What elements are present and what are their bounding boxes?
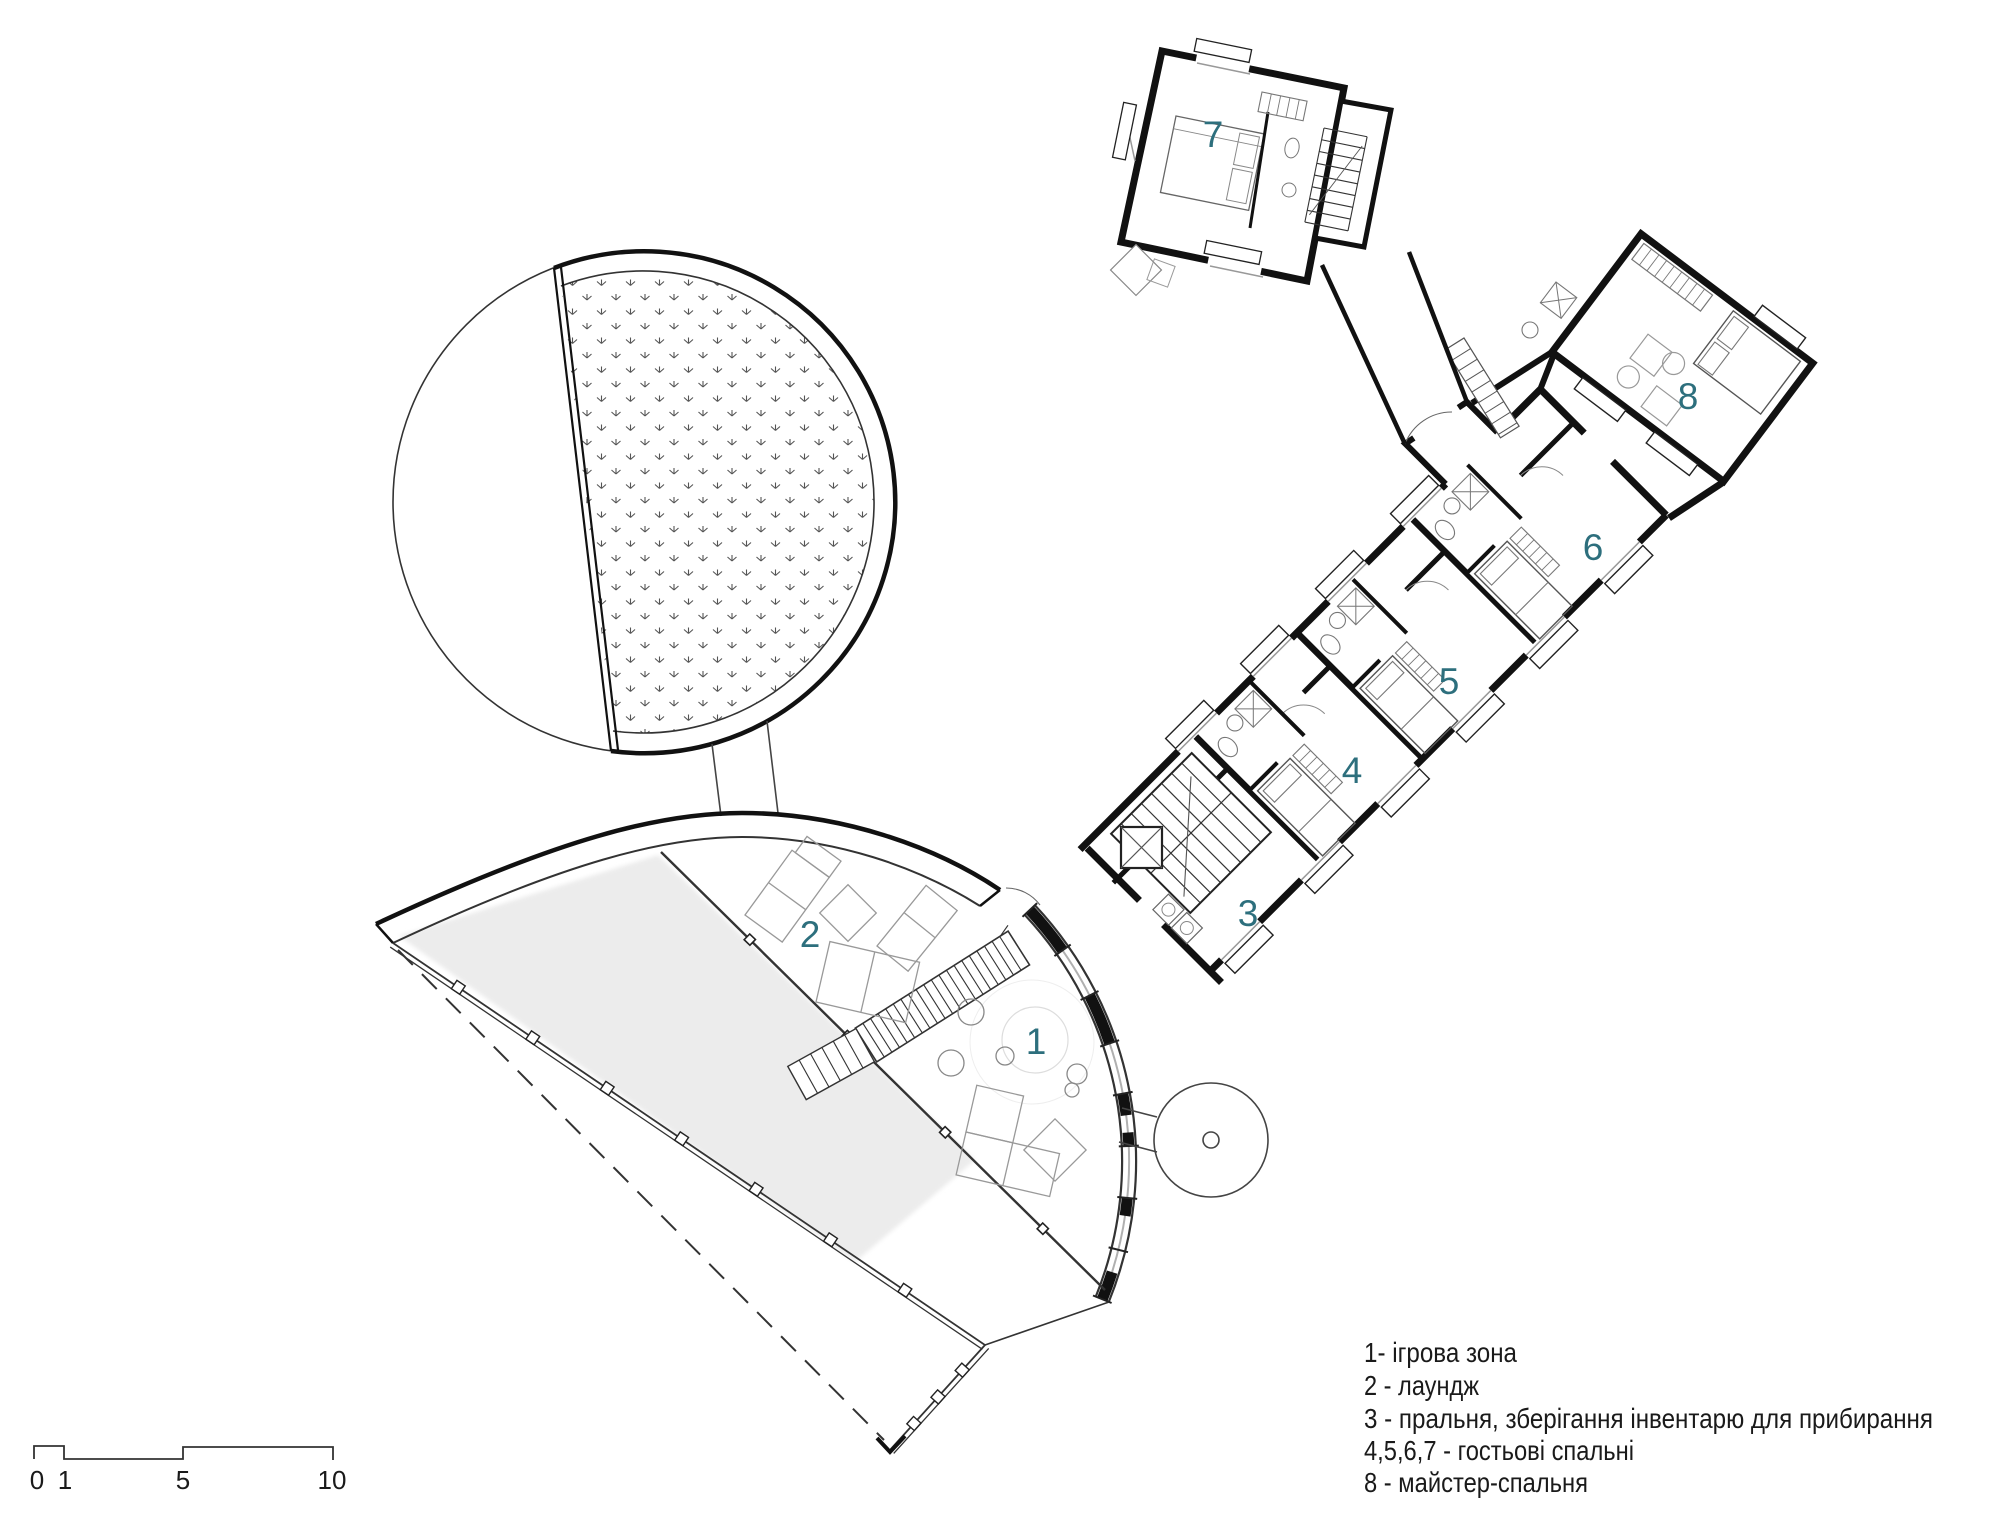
svg-text:8: 8 xyxy=(1678,376,1699,417)
svg-text:1: 1 xyxy=(1026,1021,1047,1062)
svg-text:6: 6 xyxy=(1583,527,1604,568)
svg-text:2: 2 xyxy=(800,914,821,955)
svg-text:1: 1 xyxy=(58,1465,72,1495)
svg-text:7: 7 xyxy=(1203,114,1224,155)
svg-text:2 - лаундж: 2 - лаундж xyxy=(1364,1370,1479,1401)
svg-text:8 - майстер-спальня: 8 - майстер-спальня xyxy=(1364,1467,1588,1498)
svg-text:1- ігрова зона: 1- ігрова зона xyxy=(1364,1337,1517,1368)
svg-text:0: 0 xyxy=(30,1465,44,1495)
svg-text:5: 5 xyxy=(176,1465,190,1495)
svg-text:4: 4 xyxy=(1342,750,1363,791)
svg-text:10: 10 xyxy=(318,1465,347,1495)
svg-text:4,5,6,7 - гостьові спальні: 4,5,6,7 - гостьові спальні xyxy=(1364,1435,1634,1466)
svg-text:5: 5 xyxy=(1439,661,1460,702)
svg-text:3: 3 xyxy=(1238,893,1259,934)
svg-text:3 - пральня, зберігання інвент: 3 - пральня, зберігання інвентарю для пр… xyxy=(1364,1403,1933,1434)
